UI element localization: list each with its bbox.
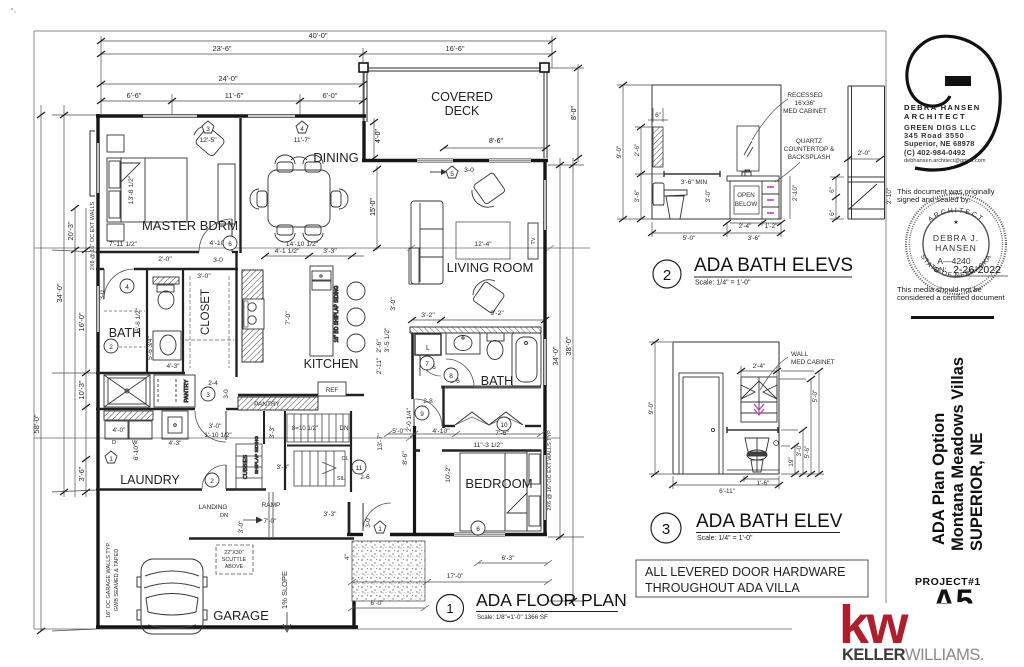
svg-text:LAUNDRY: LAUNDRY — [120, 473, 180, 487]
svg-text:2'-4": 2'-4" — [739, 223, 752, 230]
svg-text:16'-6": 16'-6" — [445, 44, 464, 53]
svg-text:SHIPLAP SIDING: SHIPLAP SIDING — [254, 436, 260, 474]
svg-text:16'x36": 16'x36" — [795, 100, 816, 107]
svg-text:DEBRA HANSEN: DEBRA HANSEN — [904, 103, 981, 112]
svg-text:CL: CL — [341, 456, 348, 462]
svg-text:6'-6": 6'-6" — [127, 91, 142, 100]
svg-text:5'-6 3/4": 5'-6 3/4" — [147, 335, 154, 359]
svg-text:6": 6" — [655, 112, 661, 119]
svg-text:3'-0": 3'-0" — [796, 444, 803, 457]
svg-text:3'-6": 3'-6" — [634, 190, 641, 203]
svg-text:DN: DN — [340, 425, 349, 432]
svg-text:2-4: 2-4 — [208, 380, 218, 387]
svg-text:3'-3": 3'-3" — [323, 248, 337, 255]
svg-text:3-0: 3-0 — [99, 290, 106, 300]
svg-text:9'-0": 9'-0" — [616, 146, 623, 159]
svg-text:4": 4" — [344, 553, 351, 560]
svg-text:2-26-2022: 2-26-2022 — [953, 264, 1001, 276]
svg-text:1: 1 — [109, 456, 113, 463]
svg-text:4'-0": 4'-0" — [375, 129, 382, 143]
svg-text:13'-7": 13'-7" — [377, 433, 384, 451]
svg-text:REF: REF — [326, 387, 339, 394]
svg-text:1% SLOPE: 1% SLOPE — [280, 571, 289, 609]
svg-text:ADA BATH ELEV: ADA BATH ELEV — [696, 511, 843, 532]
svg-text:MASTER BDRM: MASTER BDRM — [142, 218, 238, 233]
svg-text:4'-10: 4'-10 — [210, 240, 225, 247]
svg-text:GARAGE: GARAGE — [213, 608, 269, 623]
svg-text:KELLERWILLIAMS.: KELLERWILLIAMS. — [842, 646, 984, 662]
svg-text:19": 19" — [788, 457, 795, 466]
svg-text:8=10 1/2": 8=10 1/2" — [292, 425, 318, 432]
svg-text:3: 3 — [206, 126, 210, 133]
svg-text:1'-10 1/2": 1'-10 1/2" — [204, 432, 232, 439]
svg-text:DECK: DECK — [445, 104, 480, 118]
svg-text:4: 4 — [125, 284, 129, 291]
svg-text:7'-0": 7'-0" — [285, 311, 292, 325]
svg-text:11'-7": 11'-7" — [294, 137, 311, 144]
svg-text:3'-3": 3'-3" — [269, 425, 276, 439]
svg-text:RECESSED: RECESSED — [787, 92, 823, 99]
svg-text:ABOVE: ABOVE — [225, 564, 244, 570]
svg-text:10'-3": 10'-3" — [77, 380, 86, 399]
svg-text:RAMP: RAMP — [262, 502, 281, 509]
svg-text:8'-6": 8'-6" — [489, 138, 503, 145]
svg-text:2X6 @ 16" OC EXT WALLS TYP.: 2X6 @ 16" OC EXT WALLS TYP. — [547, 429, 553, 511]
svg-text:COVERED: COVERED — [431, 90, 493, 104]
svg-text:4'-1 1/2": 4'-1 1/2" — [275, 248, 300, 255]
svg-text:2-8: 2-8 — [423, 398, 433, 405]
svg-text:5'-6": 5'-6" — [804, 446, 811, 459]
svg-text:2: 2 — [109, 344, 113, 351]
svg-text:3-0: 3-0 — [223, 389, 230, 399]
svg-text:3'-3": 3'-3" — [277, 464, 291, 471]
svg-text:2-6: 2-6 — [360, 474, 370, 481]
svg-text:6: 6 — [476, 526, 480, 533]
svg-text:MED CABINET: MED CABINET — [783, 108, 827, 115]
svg-text:6'-3": 6'-3" — [502, 555, 516, 562]
svg-text:3-0: 3-0 — [213, 257, 223, 264]
svg-text:COUNTERTOP &: COUNTERTOP & — [784, 146, 835, 153]
svg-text:3'-0": 3'-0" — [197, 273, 211, 280]
svg-text:OPEN: OPEN — [737, 192, 755, 199]
svg-text:(C) 402-984-0492: (C) 402-984-0492 — [904, 148, 966, 157]
svg-text:2: 2 — [663, 267, 671, 284]
svg-text:12'-5": 12'-5" — [199, 137, 217, 144]
svg-text:PANTRY: PANTRY — [254, 401, 280, 408]
svg-text:10: 10 — [500, 422, 508, 429]
svg-text:Montana Meadows Villas: Montana Meadows Villas — [949, 357, 967, 551]
svg-text:6'-11": 6'-11" — [719, 488, 735, 495]
svg-text:3: 3 — [206, 392, 210, 399]
svg-text:SUPERIOR, NE: SUPERIOR, NE — [968, 433, 986, 551]
svg-text:10'-2": 10'-2" — [445, 465, 452, 483]
svg-text:22"X30": 22"X30" — [224, 550, 244, 556]
svg-text:TV: TV — [531, 237, 537, 244]
svg-text:3-0: 3-0 — [464, 167, 474, 174]
svg-text:5'-0": 5'-0" — [683, 235, 696, 242]
svg-text:11"-3 1/2": 11"-3 1/2" — [473, 442, 503, 449]
svg-text:LIVING ROOM: LIVING ROOM — [447, 260, 534, 275]
svg-text:PANTRY: PANTRY — [184, 379, 190, 402]
svg-text:17'-0": 17'-0" — [447, 573, 464, 580]
svg-text:1: 1 — [446, 601, 453, 616]
svg-text:2'-6": 2'-6" — [634, 144, 641, 157]
svg-text:★: ★ — [953, 219, 958, 226]
svg-text:SIL: SIL — [337, 476, 345, 482]
svg-text:11: 11 — [356, 465, 363, 472]
svg-text:3'-6" MIN: 3'-6" MIN — [681, 179, 708, 186]
svg-text:4'-3": 4'-3" — [167, 363, 181, 370]
svg-text:Scale: 1/8"=1'-0" 1366 SF: Scale: 1/8"=1'-0" 1366 SF — [477, 614, 548, 621]
svg-text:16'-0": 16'-0" — [77, 312, 86, 331]
svg-text:2'-0": 2'-0" — [158, 256, 172, 263]
svg-text:considered a certified documen: considered a certified document — [897, 293, 1006, 302]
svg-text:SCUTTLE: SCUTTLE — [222, 557, 247, 563]
svg-text:ADA FLOOR PLAN: ADA FLOOR PLAN — [476, 590, 627, 610]
svg-text:38'-0": 38'-0" — [564, 336, 573, 355]
svg-text:4: 4 — [300, 126, 304, 133]
svg-text:3'-0": 3'-0" — [390, 297, 397, 311]
svg-text:3'-0": 3'-0" — [238, 520, 245, 534]
svg-text:9: 9 — [420, 411, 424, 418]
svg-text:3: 3 — [662, 521, 670, 538]
svg-text:L: L — [426, 345, 430, 352]
svg-text:2'-0": 2'-0" — [858, 150, 871, 157]
svg-text:8: 8 — [449, 373, 453, 380]
svg-text:9'-2": 9'-2" — [490, 310, 504, 317]
svg-text:16" OC GARAGE WALLS TYP.: 16" OC GARAGE WALLS TYP. — [106, 542, 112, 618]
svg-text:3'-0": 3'-0" — [209, 423, 223, 430]
svg-text:2'-10": 2'-10" — [886, 188, 893, 204]
svg-text:16" BD SHIPLAP SIDING: 16" BD SHIPLAP SIDING — [334, 286, 340, 343]
svg-text:BELOW: BELOW — [735, 201, 758, 208]
svg-text:13'-8 1/2": 13'-8 1/2" — [128, 175, 135, 204]
svg-text:6": 6" — [829, 210, 836, 216]
svg-text:1: 1 — [378, 526, 382, 533]
svg-text:6'-0": 6'-0" — [371, 600, 385, 607]
svg-text:5: 5 — [450, 171, 454, 178]
svg-text:3'-2": 3'-2" — [421, 312, 435, 319]
svg-text:5'-0": 5'-0" — [812, 390, 819, 403]
svg-text:MED CABINET: MED CABINET — [791, 359, 835, 366]
svg-text:THROUGHOUT ADA VILLA: THROUGHOUT ADA VILLA — [645, 581, 800, 595]
svg-text:9'-0": 9'-0" — [648, 402, 655, 415]
svg-text:3-0: 3-0 — [365, 518, 372, 528]
svg-text:3'-3": 3'-3" — [324, 511, 338, 518]
svg-text:ADA BATH ELEVS: ADA BATH ELEVS — [694, 255, 853, 276]
svg-text:6'-0": 6'-0" — [323, 91, 338, 100]
svg-text:4'-3": 4'-3" — [169, 440, 183, 447]
svg-text:2'-0 1/4": 2'-0 1/4" — [406, 407, 413, 431]
svg-text:7'-11 1/2": 7'-11 1/2" — [109, 241, 138, 248]
svg-text:3'-6": 3'-6" — [77, 466, 86, 481]
svg-text:Scale: 1/4" = 1'-0": Scale: 1/4" = 1'-0" — [697, 535, 753, 542]
svg-text:Superior, NE 68978: Superior, NE 68978 — [904, 139, 975, 148]
svg-text:58'-0": 58'-0" — [32, 414, 41, 433]
svg-text:ADA Plan Option: ADA Plan Option — [930, 413, 948, 545]
svg-text:CLOSET: CLOSET — [200, 289, 212, 335]
svg-text:7: 7 — [425, 361, 429, 368]
svg-text:34'-0": 34'-0" — [55, 283, 64, 302]
svg-text:Scale: 1/4" = 1'-0": Scale: 1/4" = 1'-0" — [695, 280, 751, 287]
svg-text:12'-4": 12'-4" — [474, 241, 492, 248]
svg-text:7'-0": 7'-0" — [264, 518, 278, 525]
svg-text:3'-5 1/2": 3'-5 1/2" — [384, 327, 391, 352]
svg-text:BEDROOM: BEDROOM — [465, 476, 532, 491]
svg-text:2'-10": 2'-10" — [792, 185, 799, 201]
svg-text:2'-11": 2'-11" — [376, 357, 383, 374]
svg-text:20'-3": 20'-3" — [66, 221, 75, 240]
svg-text:D: D — [112, 440, 116, 446]
svg-text:ARCHITECT: ARCHITECT — [904, 112, 967, 121]
svg-text:2'-4": 2'-4" — [753, 363, 766, 370]
svg-text:15'-0": 15'-0" — [370, 198, 377, 216]
svg-text:4'-0": 4'-0" — [113, 427, 127, 434]
svg-text:34'-0": 34'-0" — [551, 346, 560, 365]
svg-text:6'-6 1/2": 6'-6 1/2" — [135, 307, 142, 331]
svg-text:3'-6": 3'-6" — [748, 235, 761, 242]
svg-text:2'-6": 2'-6" — [376, 339, 383, 353]
svg-text:DN: DN — [220, 513, 228, 519]
svg-text:6": 6" — [829, 187, 836, 193]
svg-text:ALL LEVERED DOOR HARDWARE: ALL LEVERED DOOR HARDWARE — [645, 565, 846, 579]
svg-text:3'-0": 3'-0" — [705, 190, 712, 203]
svg-text:2X6 @ 16" OC EXT WALLS: 2X6 @ 16" OC EXT WALLS — [90, 201, 96, 270]
svg-text:24'-0": 24'-0" — [218, 74, 237, 83]
svg-text:6'-10": 6'-10" — [133, 443, 140, 460]
svg-text:8'-0": 8'-0" — [571, 106, 578, 120]
svg-text:23'-6": 23'-6" — [212, 44, 231, 53]
svg-text:debhansen.architect@gmail.com: debhansen.architect@gmail.com — [904, 158, 986, 164]
svg-text:ON:: ON: — [933, 265, 946, 274]
svg-text:14'-10 1/2": 14'-10 1/2" — [286, 241, 319, 248]
svg-text:1'-2": 1'-2" — [765, 223, 778, 230]
svg-text:KITCHEN: KITCHEN — [304, 357, 359, 371]
svg-text:11'-6": 11'-6" — [225, 91, 244, 100]
svg-text:DEBRA J.: DEBRA J. — [933, 233, 979, 243]
svg-text:40'-0": 40'-0" — [308, 31, 327, 40]
svg-text:QUARTZ: QUARTZ — [796, 138, 822, 145]
svg-text:BATH: BATH — [481, 374, 513, 388]
svg-text:BACKSPLASH: BACKSPLASH — [788, 154, 831, 161]
svg-text:1'-6": 1'-6" — [757, 480, 770, 487]
svg-text:WALL: WALL — [791, 351, 809, 358]
svg-text:8'-6": 8'-6" — [402, 451, 409, 465]
svg-text:CUBBIES: CUBBIES — [243, 455, 249, 479]
svg-text:GWB SEAMED & TAPED: GWB SEAMED & TAPED — [114, 549, 120, 611]
svg-text:LANDING: LANDING — [199, 504, 228, 511]
svg-text:HANSEN: HANSEN — [935, 243, 977, 253]
svg-text:2: 2 — [210, 478, 214, 485]
svg-text:6: 6 — [228, 241, 232, 248]
